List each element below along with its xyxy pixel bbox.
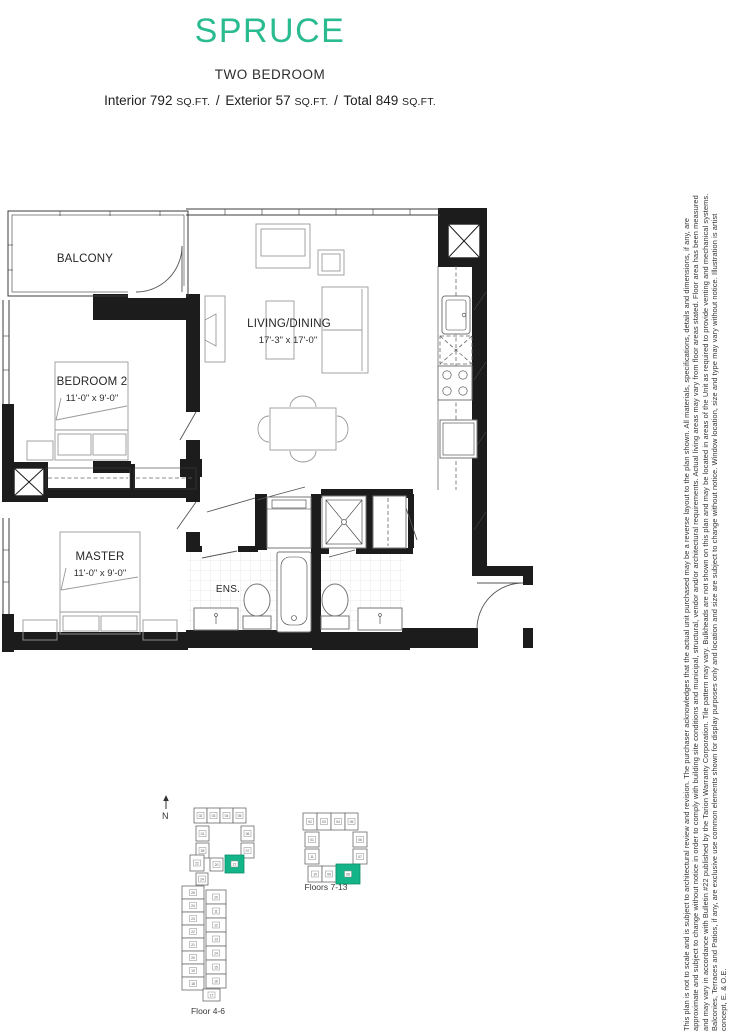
sqft-unit: SQ.FT. <box>176 96 210 108</box>
unit-number: 03 <box>322 820 326 824</box>
unit-number: 20 <box>215 863 219 867</box>
ensuite-toilet <box>243 584 271 629</box>
sofa <box>322 287 368 373</box>
unit-number: 14 <box>214 951 218 955</box>
laundry-closet <box>267 497 311 548</box>
loveseat <box>256 224 310 268</box>
shower <box>322 496 366 548</box>
keyplan-floor-4-6: N 02030405010628072220212425242322212019… <box>158 793 258 1005</box>
exterior-value: 57 <box>276 93 291 108</box>
unit-number: 06 <box>358 838 362 842</box>
keyplan-floor-4-6-label: Floor 4-6 <box>158 1006 258 1016</box>
north-label: N <box>162 811 169 821</box>
master-dims: 11'-0" x 9'-0" <box>74 568 126 579</box>
unit-number: 16 <box>214 979 218 983</box>
unit-number: 20 <box>191 956 195 960</box>
unit-number: 11 <box>310 855 314 859</box>
unit-number: 21 <box>233 862 237 866</box>
interior-label: Interior <box>104 93 146 108</box>
interior-value: 792 <box>150 93 173 108</box>
unit-number: 03 <box>212 814 216 818</box>
unit-number: 23 <box>191 917 195 921</box>
unit-number: 02 <box>199 814 203 818</box>
master-furniture <box>23 532 177 640</box>
unit-number: 21 <box>191 943 195 947</box>
sqft-unit: SQ.FT. <box>402 96 436 108</box>
living-dims: 17'-3" x 17'-0" <box>259 335 317 346</box>
dining-set <box>258 396 348 462</box>
stove <box>438 366 472 400</box>
unit-number: 15 <box>214 965 218 969</box>
exterior-label: Exterior <box>225 93 272 108</box>
living-label: LIVING/DINING <box>247 318 331 330</box>
sqft-unit: SQ.FT. <box>294 96 328 108</box>
separator: / <box>334 93 338 108</box>
unit-number: 01 <box>310 838 314 842</box>
unit-number: 10 <box>214 895 218 899</box>
unit-number: 12 <box>214 923 218 927</box>
unit-number: 28 <box>201 849 205 853</box>
balcony-label: BALCONY <box>57 253 113 265</box>
side-table <box>318 250 344 275</box>
nightstand <box>27 441 53 460</box>
unit-number: 04 <box>336 820 340 824</box>
header: SPRUCE TWO BEDROOM Interior 792 SQ.FT. /… <box>0 12 540 108</box>
north-arrow-icon: N <box>162 795 169 821</box>
entry-closet <box>373 496 406 548</box>
unit-number: 05 <box>350 820 354 824</box>
unit-number: 05 <box>238 814 242 818</box>
coffee-table <box>266 301 294 359</box>
bath-vanity <box>358 608 402 630</box>
ensuite-vanity <box>194 608 238 630</box>
ensuite-label: ENS. <box>216 584 240 595</box>
unit-number: 09 <box>327 872 331 876</box>
unit-number: 25 <box>191 891 195 895</box>
unit-number: 19 <box>191 969 195 973</box>
unit-number: 13 <box>214 937 218 941</box>
plan-type-subtitle: TWO BEDROOM <box>0 67 540 82</box>
unit-number: 08 <box>346 872 350 876</box>
unit-number: 01 <box>201 832 205 836</box>
bedroom2-dims: 11'-0" x 9'-0" <box>66 393 118 404</box>
total-value: 849 <box>376 93 399 108</box>
brochure-page: SPRUCE TWO BEDROOM Interior 792 SQ.FT. /… <box>0 0 731 1034</box>
master-label: MASTER <box>75 551 124 563</box>
unit-number: 24 <box>191 904 195 908</box>
floorplan-drawing: BALCONY LIVING/DINING 17'-3" x 17'-0" BE… <box>0 195 545 665</box>
tv-console <box>205 296 225 362</box>
unit-number: 07 <box>246 849 250 853</box>
keyplan-floors-7-13: 0203040501061107100908 <box>283 808 368 892</box>
unit-number: 10 <box>313 872 317 876</box>
separator: / <box>216 93 220 108</box>
unit-number: 07 <box>358 855 362 859</box>
total-label: Total <box>343 93 372 108</box>
unit-number: 22 <box>191 930 195 934</box>
unit-number: 18 <box>191 982 195 986</box>
kitchen-sink <box>442 296 470 334</box>
kitchen <box>438 266 477 490</box>
unit-number: 06 <box>246 832 250 836</box>
unit-number: 11 <box>214 909 218 913</box>
bath-toilet <box>321 584 349 629</box>
bathtub <box>277 552 311 632</box>
unit-number: 24 <box>200 877 204 881</box>
unit-number: 22 <box>195 861 199 865</box>
unit-number: 04 <box>225 814 229 818</box>
unit-number: 02 <box>308 820 312 824</box>
bedroom2-label: BEDROOM 2 <box>57 376 128 388</box>
area-summary: Interior 792 SQ.FT. / Exterior 57 SQ.FT.… <box>0 93 540 108</box>
legal-disclaimer: This plan is not to scale and is subject… <box>682 183 728 1031</box>
keyplan-floors-7-13-label: Floors 7-13 <box>276 882 376 892</box>
fridge <box>440 420 477 458</box>
unit-number: 17 <box>210 993 214 997</box>
page-title: SPRUCE <box>0 12 540 51</box>
